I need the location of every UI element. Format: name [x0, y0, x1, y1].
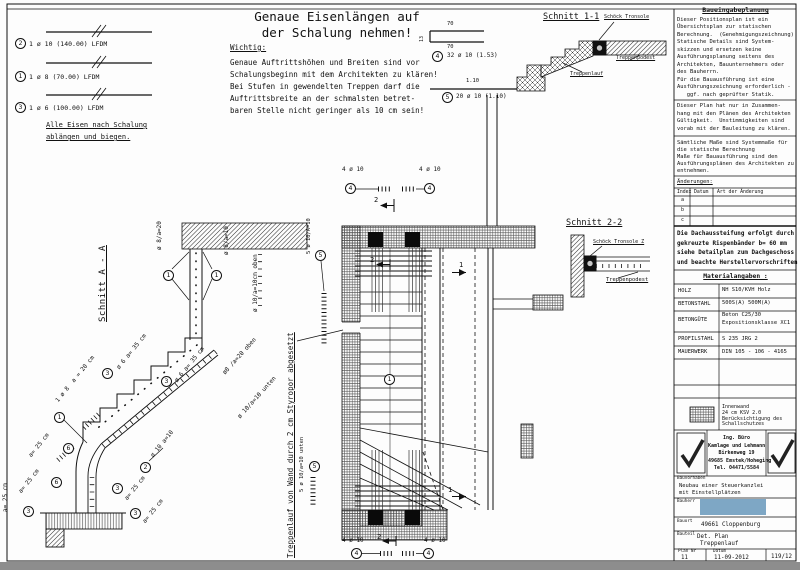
text-line: siehe Detailplan zum Dachgeschoss	[677, 249, 798, 259]
bar-schedule-label: 20 ø 10 (1.10)	[456, 94, 507, 101]
material-value: Expositionsklasse XC1	[722, 320, 790, 326]
plan-view-drawing	[297, 95, 563, 554]
material-value: Beton C25/30	[722, 312, 761, 318]
legend-bars	[46, 25, 152, 100]
material-key: BETONSTAHL	[678, 301, 710, 307]
text-line: 49685 Emstek/Hoheging	[708, 458, 765, 466]
aenderungen-row-index: b	[681, 208, 684, 214]
material-key: HOLZ	[678, 288, 691, 294]
callout-label: 4 ø 10	[424, 538, 446, 545]
rebar-label: ø 8/a=20	[157, 221, 164, 250]
text-line: Schallschutzes	[722, 422, 782, 428]
rebar-pos-circle: 1	[163, 270, 174, 281]
callout-label: 4 ø 10	[342, 538, 364, 545]
legend-item-label: 1 ø 10 (140.00) LFDM	[29, 41, 107, 48]
text-line: Gültigkeit. Unstimmigkeiten sind	[677, 118, 791, 126]
info-paragraph-2: Dieser Plan hat nur in Zusammen-hang mit…	[677, 103, 791, 133]
bauteil-value: Det. Plan	[697, 534, 728, 541]
cut-mark-label: 2	[370, 256, 374, 264]
datum-value: 11-09-2012	[714, 555, 749, 562]
plannr-value: 11	[681, 555, 688, 562]
text-line: skizzen und ersetzen keine	[677, 47, 794, 54]
position-circle: 1	[384, 374, 395, 385]
text-line: hang mit den Plänen des Architekten	[677, 111, 791, 119]
bauteil-label: Bauteil	[677, 533, 695, 538]
rebar-pos-circle: 6	[63, 443, 74, 454]
text-line: Ausführungsplanung seitens des	[677, 54, 794, 61]
rebar-pos-circle: 3	[23, 506, 34, 517]
legend-note: ablängen und biegen.	[46, 133, 130, 141]
text-line: Bei Stufen in gewendelten Treppen darf d…	[230, 81, 438, 93]
rebar-pos-circle: 3	[130, 508, 141, 519]
podest-label: Treppenpodest	[606, 277, 648, 283]
material-table-title: Materialangaben :	[676, 273, 795, 280]
rebar-label: ø 10/a=10cm oben	[253, 254, 260, 312]
rebar-pos-circle: 6	[51, 477, 62, 488]
dim-label: 13	[420, 36, 426, 42]
legend-item-label: 1 ø 8 (70.00) LFDM	[29, 74, 99, 81]
material-value: DIN 105 - 106 - 4165	[722, 349, 787, 355]
text-line: Kamlage und Lehmann	[708, 443, 765, 451]
bottom-bar	[0, 562, 800, 570]
schnitt-2-2-title: Schnitt 2-2	[566, 219, 622, 229]
cut-mark-label: 1	[459, 261, 463, 269]
aenderungen-col-header: Datum	[694, 190, 708, 196]
aenderungen-row-index: a	[681, 198, 684, 204]
legend-pos-circle: 2	[15, 38, 26, 49]
material-key: BETONGÜTE	[678, 317, 707, 323]
text-line: ggf. nach geprüfter Statik.	[677, 92, 794, 99]
text-line: Ing. Büro	[708, 435, 765, 443]
text-line: und beachte Herstellervorschriften	[677, 259, 798, 269]
bauherr-label: Bauherr	[677, 500, 695, 505]
text-line: Berechnung. (Genehmigungszeichnung)	[677, 32, 794, 39]
schnitt-1-1-title: Schnitt 1-1	[543, 13, 599, 23]
rebar-label: ø 8/a=10	[224, 226, 231, 255]
info-panel-title: Baueingabeplanung	[676, 7, 795, 14]
rebar-pos-circle: 3	[112, 483, 123, 494]
text-line: Für die Bauausführung ist eine	[677, 77, 794, 84]
text-line: Übersichtsplan zur statischen	[677, 24, 794, 31]
material-key: PROFILSTAHL	[678, 336, 714, 342]
aenderungen-col-header: Art der Änderung	[717, 190, 763, 196]
text-line: entnehmen.	[677, 168, 794, 175]
text-line: Schalungsbeginn mit dem Architekten zu k…	[230, 69, 438, 81]
wichtig-label: Wichtig:	[230, 44, 266, 53]
text-line: Maße für Bauausführung sind den	[677, 154, 794, 161]
drawing-sheet: 2 1 ø 10 (140.00) LFDM 1 1 ø 8 (70.00) L…	[0, 0, 800, 570]
legend-pos-circle: 1	[15, 71, 26, 82]
text-line: Tel. 04471/5584	[708, 465, 765, 473]
rebar-pos-circle: 1	[211, 270, 222, 281]
rebar-label: 5 ø 10/A=10	[306, 218, 312, 254]
aenderungen-row-index: c	[681, 218, 684, 224]
text-line: vorab mit der Bauleitung zu klären.	[677, 126, 791, 134]
podest-label: Treppenpodest	[616, 56, 655, 62]
bauvorhaben-value: mit Einstellplätzen	[679, 490, 741, 496]
text-line: Auftrittsbreite an der schmalsten betret…	[230, 93, 438, 105]
material-value: S 235 JRG 2	[722, 336, 758, 342]
firm-block: Ing. BüroKamlage und LehmannBirkenweg 19…	[708, 435, 765, 473]
innenwand-legend: Innenwand24 cm KSV 2.0Berücksichtigung d…	[722, 405, 782, 428]
rebar-pos-circle: 3	[161, 376, 172, 387]
rebar-pos-circle: 2	[140, 462, 151, 473]
material-value: NH S10/KVH Holz	[722, 287, 771, 293]
cut-mark-label: 1	[448, 486, 452, 494]
bauteil-value: Treppenlauf	[700, 541, 738, 548]
text-line: Dieser Plan hat nur in Zusammen-	[677, 103, 791, 111]
material-value: 500S(A) 500M(A)	[722, 300, 771, 306]
bauort-value: 49661 Cloppenburg	[701, 522, 760, 529]
text-line: Genaue Auftrittshöhen und Breiten sind v…	[230, 57, 438, 69]
callout-pos-circle: 4	[424, 183, 435, 194]
dim-label: 70	[447, 44, 454, 50]
text-line: des Bauherrn.	[677, 69, 794, 76]
text-line: gekreuzte Rispenbänder b= 60 mm	[677, 240, 798, 250]
bauherr-redaction-box	[700, 499, 766, 515]
callout-pos-circle: 4	[351, 548, 362, 559]
bar-pos-circle: 5	[442, 92, 453, 103]
text-line: Architekten, Bauunternehmers oder	[677, 62, 794, 69]
sheet-headline: der Schalung nehmen!	[232, 26, 442, 40]
bar-schedule-label: 32 ø 10 (1.53)	[447, 53, 498, 60]
tronsole-label: Schöck Tronsole	[604, 15, 649, 21]
material-key: MAUERWERK	[678, 349, 707, 355]
text-line: baren Stelle nicht geringer als 10 cm se…	[230, 105, 438, 117]
rebar-label: a= 25 cm	[3, 483, 10, 512]
lauf-label: Treppenlauf	[570, 72, 603, 78]
rebar-pos-circle: 5	[309, 461, 320, 472]
callout-label: 4 ø 10	[342, 167, 364, 174]
text-line: Die Dachaussteifung erfolgt durch	[677, 230, 798, 240]
callout-pos-circle: 4	[345, 183, 356, 194]
info-paragraph-3: Sämtliche Maße sind Systemmaße fürdie st…	[677, 140, 794, 175]
cut-mark-label: 2	[374, 196, 378, 204]
rebar-label: 5 ø 10/a=10 unten	[299, 437, 305, 492]
aenderungen-label: Änderungen:	[677, 179, 713, 185]
dim-label: 70	[447, 21, 454, 27]
ref-value: 119/12	[771, 554, 792, 561]
text-line: Birkenweg 19	[708, 450, 765, 458]
rebar-pos-circle: 1	[54, 412, 65, 423]
wichtig-note: Genaue Auftrittshöhen und Breiten sind v…	[230, 57, 438, 117]
callout-pos-circle: 4	[423, 548, 434, 559]
section-a-a-title: Schnitt A - A	[98, 245, 108, 322]
bar-pos-circle: 4	[432, 51, 443, 62]
text-line: Sämtliche Maße sind Systemmaße für	[677, 140, 794, 147]
sheet-headline: Genaue Eisenlängen auf	[232, 10, 442, 24]
tronsole-label: Schöck Tronsole Z	[593, 240, 644, 246]
dach-note: Die Dachaussteifung erfolgt durchgekreuz…	[677, 230, 798, 268]
rebar-pos-circle: 5	[315, 250, 326, 261]
text-line: Ausführungsplänen des Architekten zu	[677, 161, 794, 168]
legend-item-label: 1 ø 6 (100.00) LFDM	[29, 105, 103, 112]
text-line: Statische Details sind System-	[677, 39, 794, 46]
callout-label: 4 ø 10	[419, 167, 441, 174]
rebar-pos-circle: 3	[102, 368, 113, 379]
aenderungen-col-header: Index	[677, 190, 691, 196]
bauvorhaben-value: Neubau einer Steuerkanzlei	[679, 483, 763, 489]
bauvorhaben-label: Bauvorhaben	[677, 477, 705, 482]
styropor-note: Treppenlauf von Wand durch 2 cm Styropor…	[287, 332, 296, 558]
dim-label: 1.10	[466, 78, 479, 84]
legend-pos-circle: 3	[15, 102, 26, 113]
bauort-label: Bauort	[677, 520, 693, 525]
text-line: Ausführungszeichnung erforderlich -	[677, 84, 794, 91]
text-line: die statische Berechnung	[677, 147, 794, 154]
legend-note: Alle Eisen nach Schalung	[46, 121, 147, 129]
info-paragraph-1: Dieser Positionsplan ist einÜbersichtspl…	[677, 17, 794, 99]
cut-mark-label: 2	[377, 533, 381, 541]
